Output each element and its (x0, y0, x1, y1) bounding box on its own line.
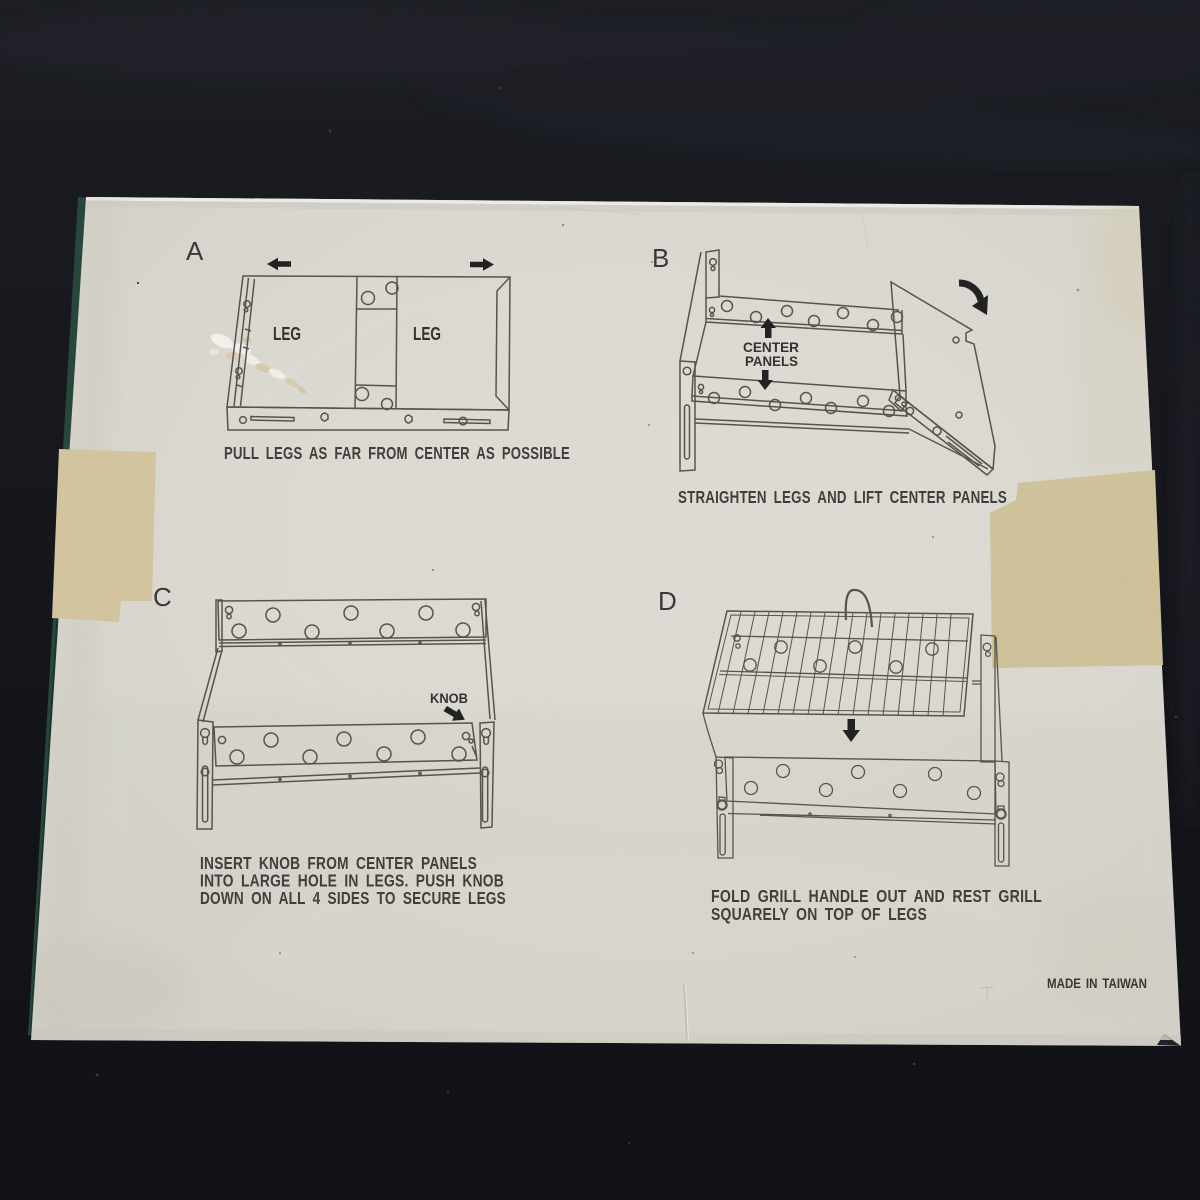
svg-text:LEG: LEG (273, 324, 301, 344)
svg-text:C: C (153, 582, 172, 612)
svg-text:PULL LEGS AS FAR FROM CENTER A: PULL LEGS AS FAR FROM CENTER AS POSSIBLE (224, 443, 570, 463)
svg-text:PANELS: PANELS (745, 353, 798, 369)
svg-text:LEG: LEG (413, 324, 441, 344)
svg-text:MADE IN TAIWAN: MADE IN TAIWAN (1047, 975, 1147, 991)
svg-text:DOWN ON ALL 4 SIDES TO SECURE: DOWN ON ALL 4 SIDES TO SECURE LEGS (200, 888, 506, 908)
svg-text:D: D (658, 586, 677, 616)
svg-text:SQUARELY ON TOP OF LEGS: SQUARELY ON TOP OF LEGS (711, 904, 927, 924)
svg-text:B: B (652, 243, 669, 273)
svg-text:KNOB: KNOB (430, 690, 468, 706)
svg-text:FOLD GRILL HANDLE OUT AND REST: FOLD GRILL HANDLE OUT AND REST GRILL (711, 886, 1042, 906)
svg-text:A: A (186, 236, 204, 266)
svg-text:STRAIGHTEN LEGS AND LIFT CENTE: STRAIGHTEN LEGS AND LIFT CENTER PANELS (678, 487, 1007, 507)
